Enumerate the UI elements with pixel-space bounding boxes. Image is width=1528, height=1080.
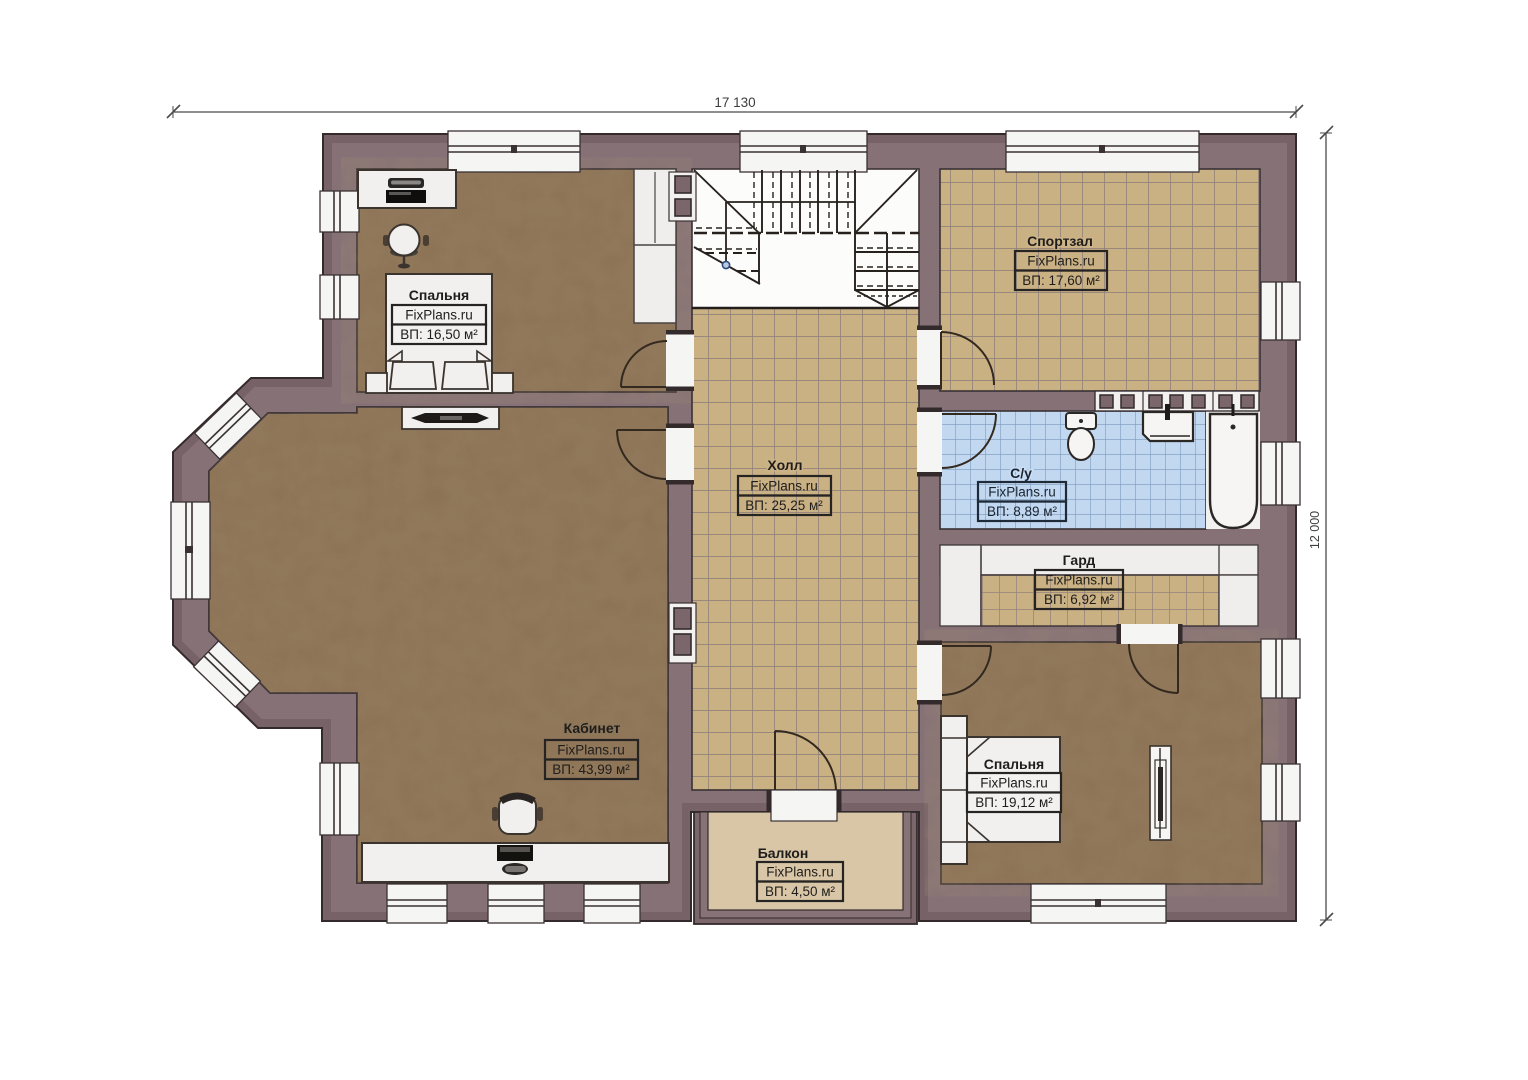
svg-text:Спальня: Спальня [409, 287, 469, 303]
svg-text:FixPlans.ru: FixPlans.ru [1027, 254, 1095, 269]
svg-text:FixPlans.ru: FixPlans.ru [405, 308, 473, 323]
svg-text:ВП: 16,50 м²: ВП: 16,50 м² [400, 327, 478, 342]
svg-text:Спортзал: Спортзал [1027, 233, 1093, 249]
svg-text:FixPlans.ru: FixPlans.ru [1045, 573, 1113, 588]
svg-text:ВП: 6,92 м²: ВП: 6,92 м² [1044, 592, 1115, 607]
svg-text:С/у: С/у [1010, 465, 1032, 481]
svg-text:12 000: 12 000 [1308, 511, 1322, 549]
svg-text:ВП: 8,89 м²: ВП: 8,89 м² [987, 504, 1058, 519]
svg-text:ВП: 17,60 м²: ВП: 17,60 м² [1022, 273, 1100, 288]
svg-text:ВП: 4,50 м²: ВП: 4,50 м² [765, 884, 836, 899]
svg-text:17 130: 17 130 [714, 95, 755, 110]
svg-text:ВП: 19,12 м²: ВП: 19,12 м² [975, 795, 1053, 810]
svg-text:Кабинет: Кабинет [564, 720, 621, 736]
svg-text:ВП: 25,25 м²: ВП: 25,25 м² [745, 498, 823, 513]
svg-text:Балкон: Балкон [758, 845, 809, 861]
svg-text:FixPlans.ru: FixPlans.ru [557, 743, 625, 758]
svg-text:ВП: 43,99 м²: ВП: 43,99 м² [552, 762, 630, 777]
svg-text:FixPlans.ru: FixPlans.ru [988, 485, 1056, 500]
svg-text:Гард: Гард [1063, 552, 1096, 568]
svg-text:FixPlans.ru: FixPlans.ru [766, 865, 834, 880]
svg-text:Спальня: Спальня [984, 756, 1044, 772]
svg-text:FixPlans.ru: FixPlans.ru [980, 776, 1048, 791]
svg-text:FixPlans.ru: FixPlans.ru [750, 479, 818, 494]
svg-text:Холл: Холл [767, 457, 802, 473]
